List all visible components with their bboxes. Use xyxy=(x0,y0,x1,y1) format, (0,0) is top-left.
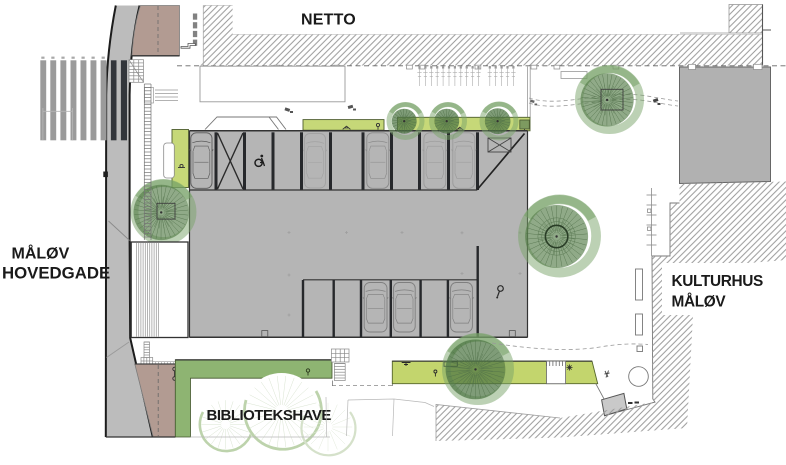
svg-text:MÅLØV: MÅLØV xyxy=(672,294,727,311)
svg-text:MÅLØV: MÅLØV xyxy=(12,244,70,263)
svg-text:KULTURHUS: KULTURHUS xyxy=(672,273,764,290)
svg-text:NETTO: NETTO xyxy=(301,12,356,29)
svg-text:HOVEDGADE: HOVEDGADE xyxy=(2,264,110,283)
svg-text:BIBLIOTEKSHAVE: BIBLIOTEKSHAVE xyxy=(207,407,332,424)
